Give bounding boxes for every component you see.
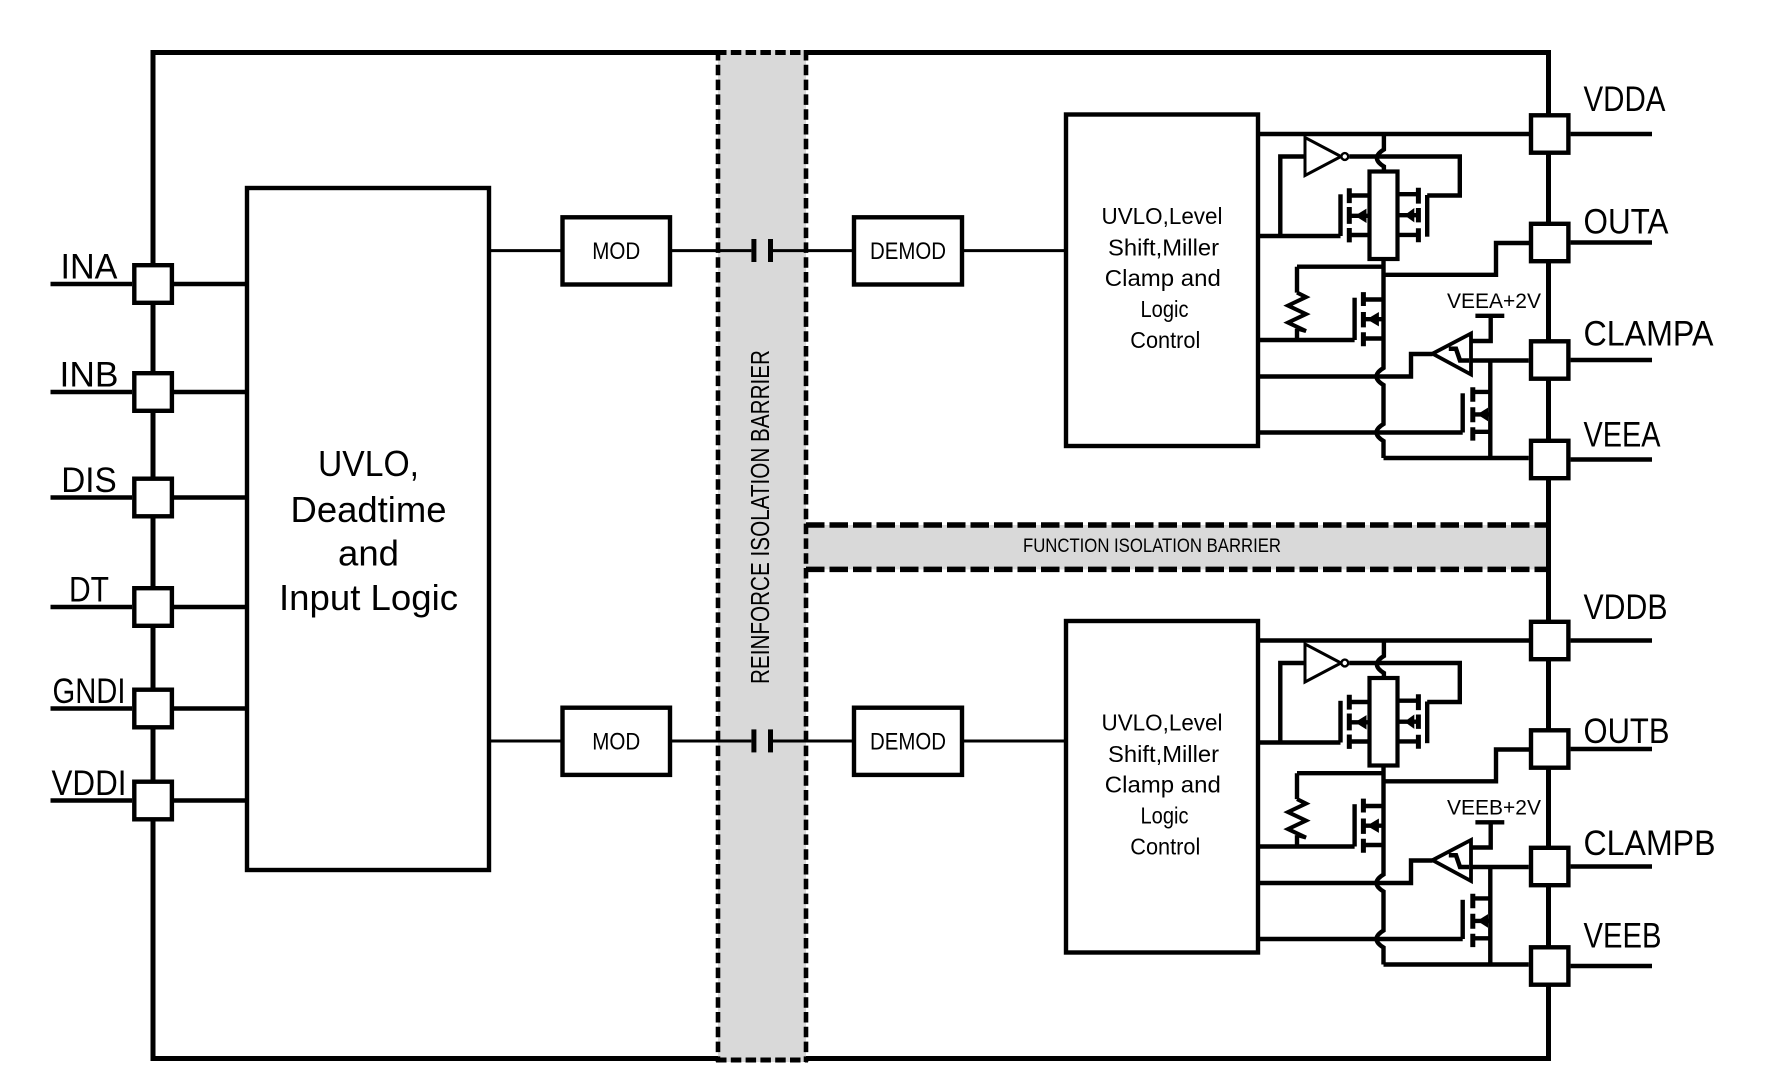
svg-text:DT: DT: [69, 571, 109, 610]
svg-text:VEEA: VEEA: [1584, 416, 1662, 455]
svg-text:VEEB+2V: VEEB+2V: [1447, 796, 1542, 820]
svg-text:UVLO,: UVLO,: [318, 443, 419, 484]
svg-text:VEEB: VEEB: [1584, 917, 1662, 956]
svg-text:FUNCTION ISOLATION BARRIER: FUNCTION ISOLATION BARRIER: [1023, 536, 1281, 557]
svg-text:MOD: MOD: [592, 728, 640, 755]
svg-text:MOD: MOD: [592, 238, 640, 265]
svg-text:VDDA: VDDA: [1584, 80, 1667, 119]
svg-text:VEEA+2V: VEEA+2V: [1447, 289, 1542, 313]
svg-text:GNDI: GNDI: [53, 672, 126, 711]
svg-text:INA: INA: [61, 248, 119, 287]
svg-text:OUTA: OUTA: [1584, 203, 1670, 242]
svg-text:CLAMPA: CLAMPA: [1584, 315, 1715, 354]
svg-text:CLAMPB: CLAMPB: [1584, 824, 1716, 863]
svg-text:INB: INB: [60, 356, 119, 395]
svg-text:DEMOD: DEMOD: [870, 238, 946, 265]
svg-text:Deadtime: Deadtime: [291, 489, 447, 530]
svg-text:DIS: DIS: [61, 461, 117, 500]
svg-text:REINFORCE ISOLATION BARRIER: REINFORCE ISOLATION BARRIER: [745, 350, 775, 684]
svg-text:OUTB: OUTB: [1584, 712, 1670, 751]
svg-text:VDDB: VDDB: [1584, 588, 1668, 627]
svg-text:Input Logic: Input Logic: [279, 577, 458, 618]
svg-text:DEMOD: DEMOD: [870, 728, 946, 755]
svg-text:VDDI: VDDI: [52, 764, 127, 803]
svg-text:and: and: [338, 533, 399, 574]
